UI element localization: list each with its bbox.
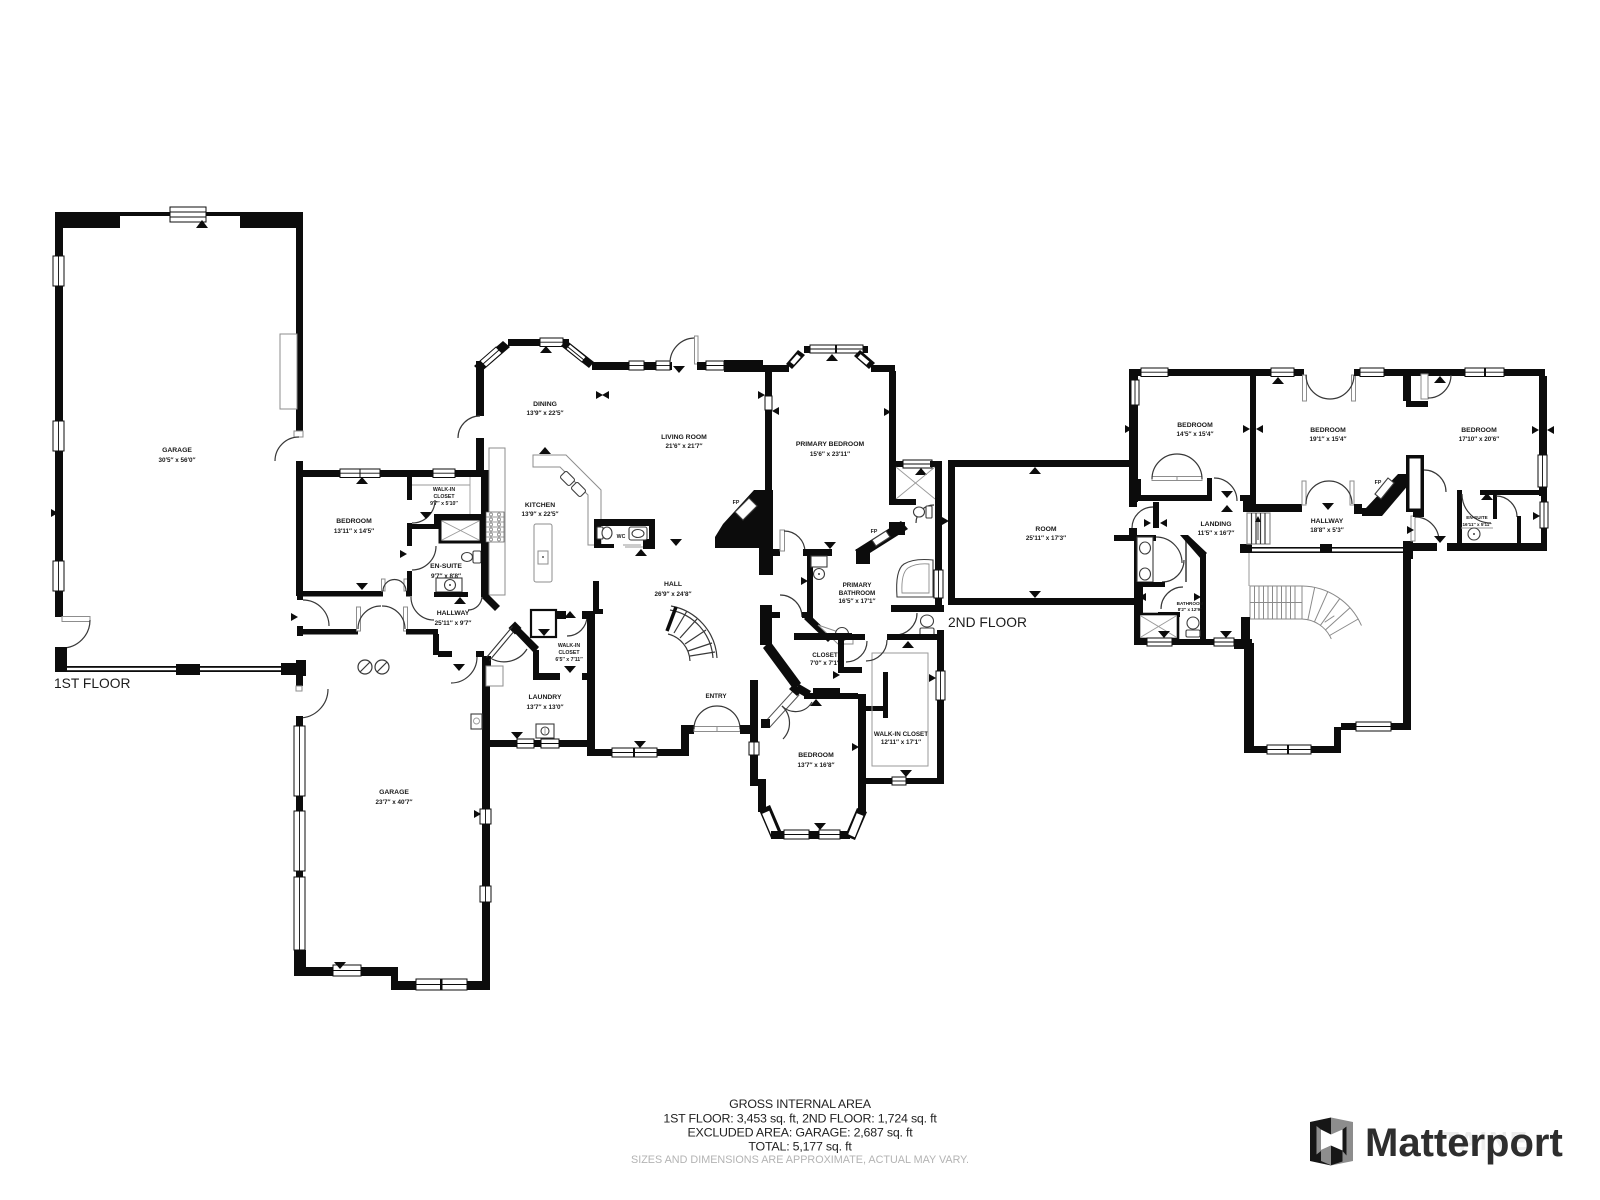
svg-text:PRIMARY BEDROOM: PRIMARY BEDROOM bbox=[796, 441, 865, 448]
svg-text:SIZES AND DIMENSIONS ARE APPRO: SIZES AND DIMENSIONS ARE APPROXIMATE, AC… bbox=[631, 1154, 969, 1166]
svg-text:BEDROOM: BEDROOM bbox=[336, 518, 372, 525]
svg-text:EXCLUDED AREA: GARAGE: 2,687 s: EXCLUDED AREA: GARAGE: 2,687 sq. ft bbox=[687, 1126, 913, 1140]
svg-text:12′11″ x 17′1″: 12′11″ x 17′1″ bbox=[881, 739, 921, 746]
svg-text:6′5″ x 7′11″: 6′5″ x 7′11″ bbox=[555, 657, 583, 663]
svg-text:BEDROOM: BEDROOM bbox=[1461, 427, 1497, 434]
svg-text:PRIMARY: PRIMARY bbox=[843, 582, 873, 589]
svg-text:DINING: DINING bbox=[533, 401, 557, 408]
svg-text:WALK-IN: WALK-IN bbox=[558, 643, 580, 649]
svg-text:16′5″ x 17′1″: 16′5″ x 17′1″ bbox=[838, 598, 875, 605]
svg-text:LIVING ROOM: LIVING ROOM bbox=[661, 434, 707, 441]
svg-text:CLOSET: CLOSET bbox=[812, 652, 838, 659]
svg-text:WALK-IN: WALK-IN bbox=[433, 487, 455, 493]
svg-text:EN-SUITE: EN-SUITE bbox=[430, 563, 462, 570]
svg-text:CLOSET: CLOSET bbox=[558, 650, 580, 656]
svg-text:11′5″ x 16′7″: 11′5″ x 16′7″ bbox=[1198, 530, 1235, 537]
svg-text:HALLWAY: HALLWAY bbox=[437, 610, 470, 617]
svg-text:15′6″ x 23′11″: 15′6″ x 23′11″ bbox=[810, 451, 850, 458]
svg-text:GROSS INTERNAL AREA: GROSS INTERNAL AREA bbox=[729, 1097, 872, 1111]
svg-text:17′10″ x 20′6″: 17′10″ x 20′6″ bbox=[1459, 436, 1500, 443]
svg-text:14′5″ x 15′4″: 14′5″ x 15′4″ bbox=[1176, 431, 1213, 438]
svg-text:26′9″ x 24′8″: 26′9″ x 24′8″ bbox=[654, 591, 691, 598]
svg-text:25′11″ x 9′7″: 25′11″ x 9′7″ bbox=[435, 620, 472, 627]
svg-text:2ND FLOOR: 2ND FLOOR bbox=[948, 615, 1027, 630]
svg-text:FP: FP bbox=[1375, 480, 1382, 486]
svg-text:Matterport: Matterport bbox=[1365, 1121, 1563, 1165]
svg-text:18′8″ x 5′3″: 18′8″ x 5′3″ bbox=[1310, 527, 1344, 534]
svg-text:1ST FLOOR: 3,453 sq. ft, 2ND F: 1ST FLOOR: 3,453 sq. ft, 2ND FLOOR: 1,72… bbox=[663, 1112, 937, 1126]
svg-text:13′7″ x 16′8″: 13′7″ x 16′8″ bbox=[797, 762, 834, 769]
svg-text:HALLWAY: HALLWAY bbox=[1311, 518, 1344, 525]
svg-text:KITCHEN: KITCHEN bbox=[525, 502, 555, 509]
svg-text:BEDROOM: BEDROOM bbox=[798, 752, 834, 759]
svg-text:ROOM: ROOM bbox=[1035, 526, 1056, 533]
svg-text:LAUNDRY: LAUNDRY bbox=[529, 694, 562, 701]
svg-text:8′2″ x 12′9″: 8′2″ x 12′9″ bbox=[1178, 607, 1203, 612]
svg-text:FP: FP bbox=[733, 500, 740, 506]
svg-text:BATHROOM: BATHROOM bbox=[1177, 601, 1204, 606]
svg-text:FP: FP bbox=[871, 529, 878, 535]
svg-text:7′0″ x 7′1″: 7′0″ x 7′1″ bbox=[810, 660, 840, 667]
svg-text:9′7″ x 5′10″: 9′7″ x 5′10″ bbox=[430, 501, 458, 507]
svg-text:GARAGE: GARAGE bbox=[379, 789, 409, 796]
svg-text:13′7″ x 13′0″: 13′7″ x 13′0″ bbox=[526, 704, 563, 711]
svg-text:HALL: HALL bbox=[664, 581, 682, 588]
svg-text:WALK-IN CLOSET: WALK-IN CLOSET bbox=[874, 731, 928, 738]
svg-text:EN-SUITE: EN-SUITE bbox=[1466, 515, 1487, 520]
svg-text:WC: WC bbox=[617, 534, 626, 540]
svg-text:ENTRY: ENTRY bbox=[705, 693, 727, 700]
svg-text:BEDROOM: BEDROOM bbox=[1310, 427, 1346, 434]
svg-text:25′11″ x 17′3″: 25′11″ x 17′3″ bbox=[1026, 535, 1066, 542]
svg-text:LANDING: LANDING bbox=[1201, 521, 1232, 528]
svg-text:CLOSET: CLOSET bbox=[433, 494, 455, 500]
svg-text:BEDROOM: BEDROOM bbox=[1177, 422, 1213, 429]
svg-text:BATHROOM: BATHROOM bbox=[839, 590, 876, 597]
svg-text:TOTAL: 5,177 sq. ft: TOTAL: 5,177 sq. ft bbox=[748, 1140, 852, 1154]
svg-text:23′7″ x 40′7″: 23′7″ x 40′7″ bbox=[375, 799, 412, 806]
svg-text:13′9″ x 22′5″: 13′9″ x 22′5″ bbox=[521, 511, 558, 518]
svg-text:16′11″ x 5′11″: 16′11″ x 5′11″ bbox=[1462, 522, 1492, 527]
svg-text:13′11″ x 14′5″: 13′11″ x 14′5″ bbox=[334, 528, 374, 535]
svg-text:1ST FLOOR: 1ST FLOOR bbox=[54, 676, 130, 691]
svg-text:19′1″ x 15′4″: 19′1″ x 15′4″ bbox=[1309, 436, 1346, 443]
svg-text:30′5″ x 56′0″: 30′5″ x 56′0″ bbox=[158, 457, 195, 464]
svg-text:21′6″ x 21′7″: 21′6″ x 21′7″ bbox=[665, 443, 702, 450]
svg-text:GARAGE: GARAGE bbox=[162, 447, 192, 454]
svg-text:13′9″ x 22′5″: 13′9″ x 22′5″ bbox=[526, 410, 563, 417]
